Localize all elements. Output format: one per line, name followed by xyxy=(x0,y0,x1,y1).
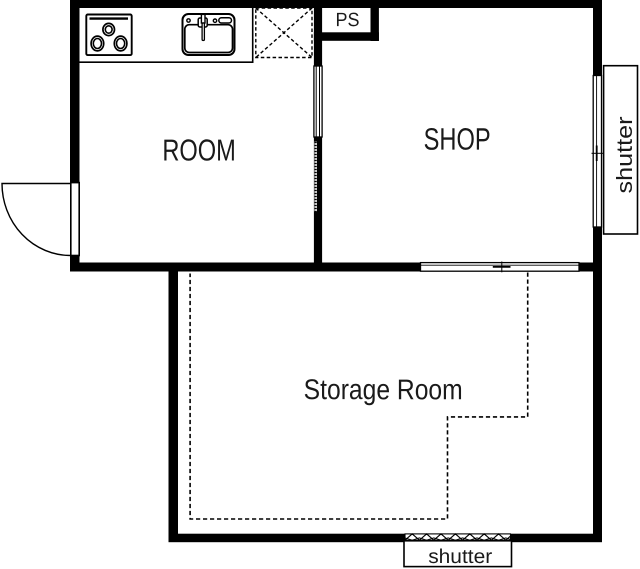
svg-text:ROOM: ROOM xyxy=(162,133,236,167)
svg-text:PS: PS xyxy=(335,10,359,31)
svg-text:SHOP: SHOP xyxy=(424,122,491,157)
svg-text:shutter: shutter xyxy=(428,546,492,568)
svg-text:shutter: shutter xyxy=(612,116,637,194)
svg-text:Storage Room: Storage Room xyxy=(304,374,463,406)
